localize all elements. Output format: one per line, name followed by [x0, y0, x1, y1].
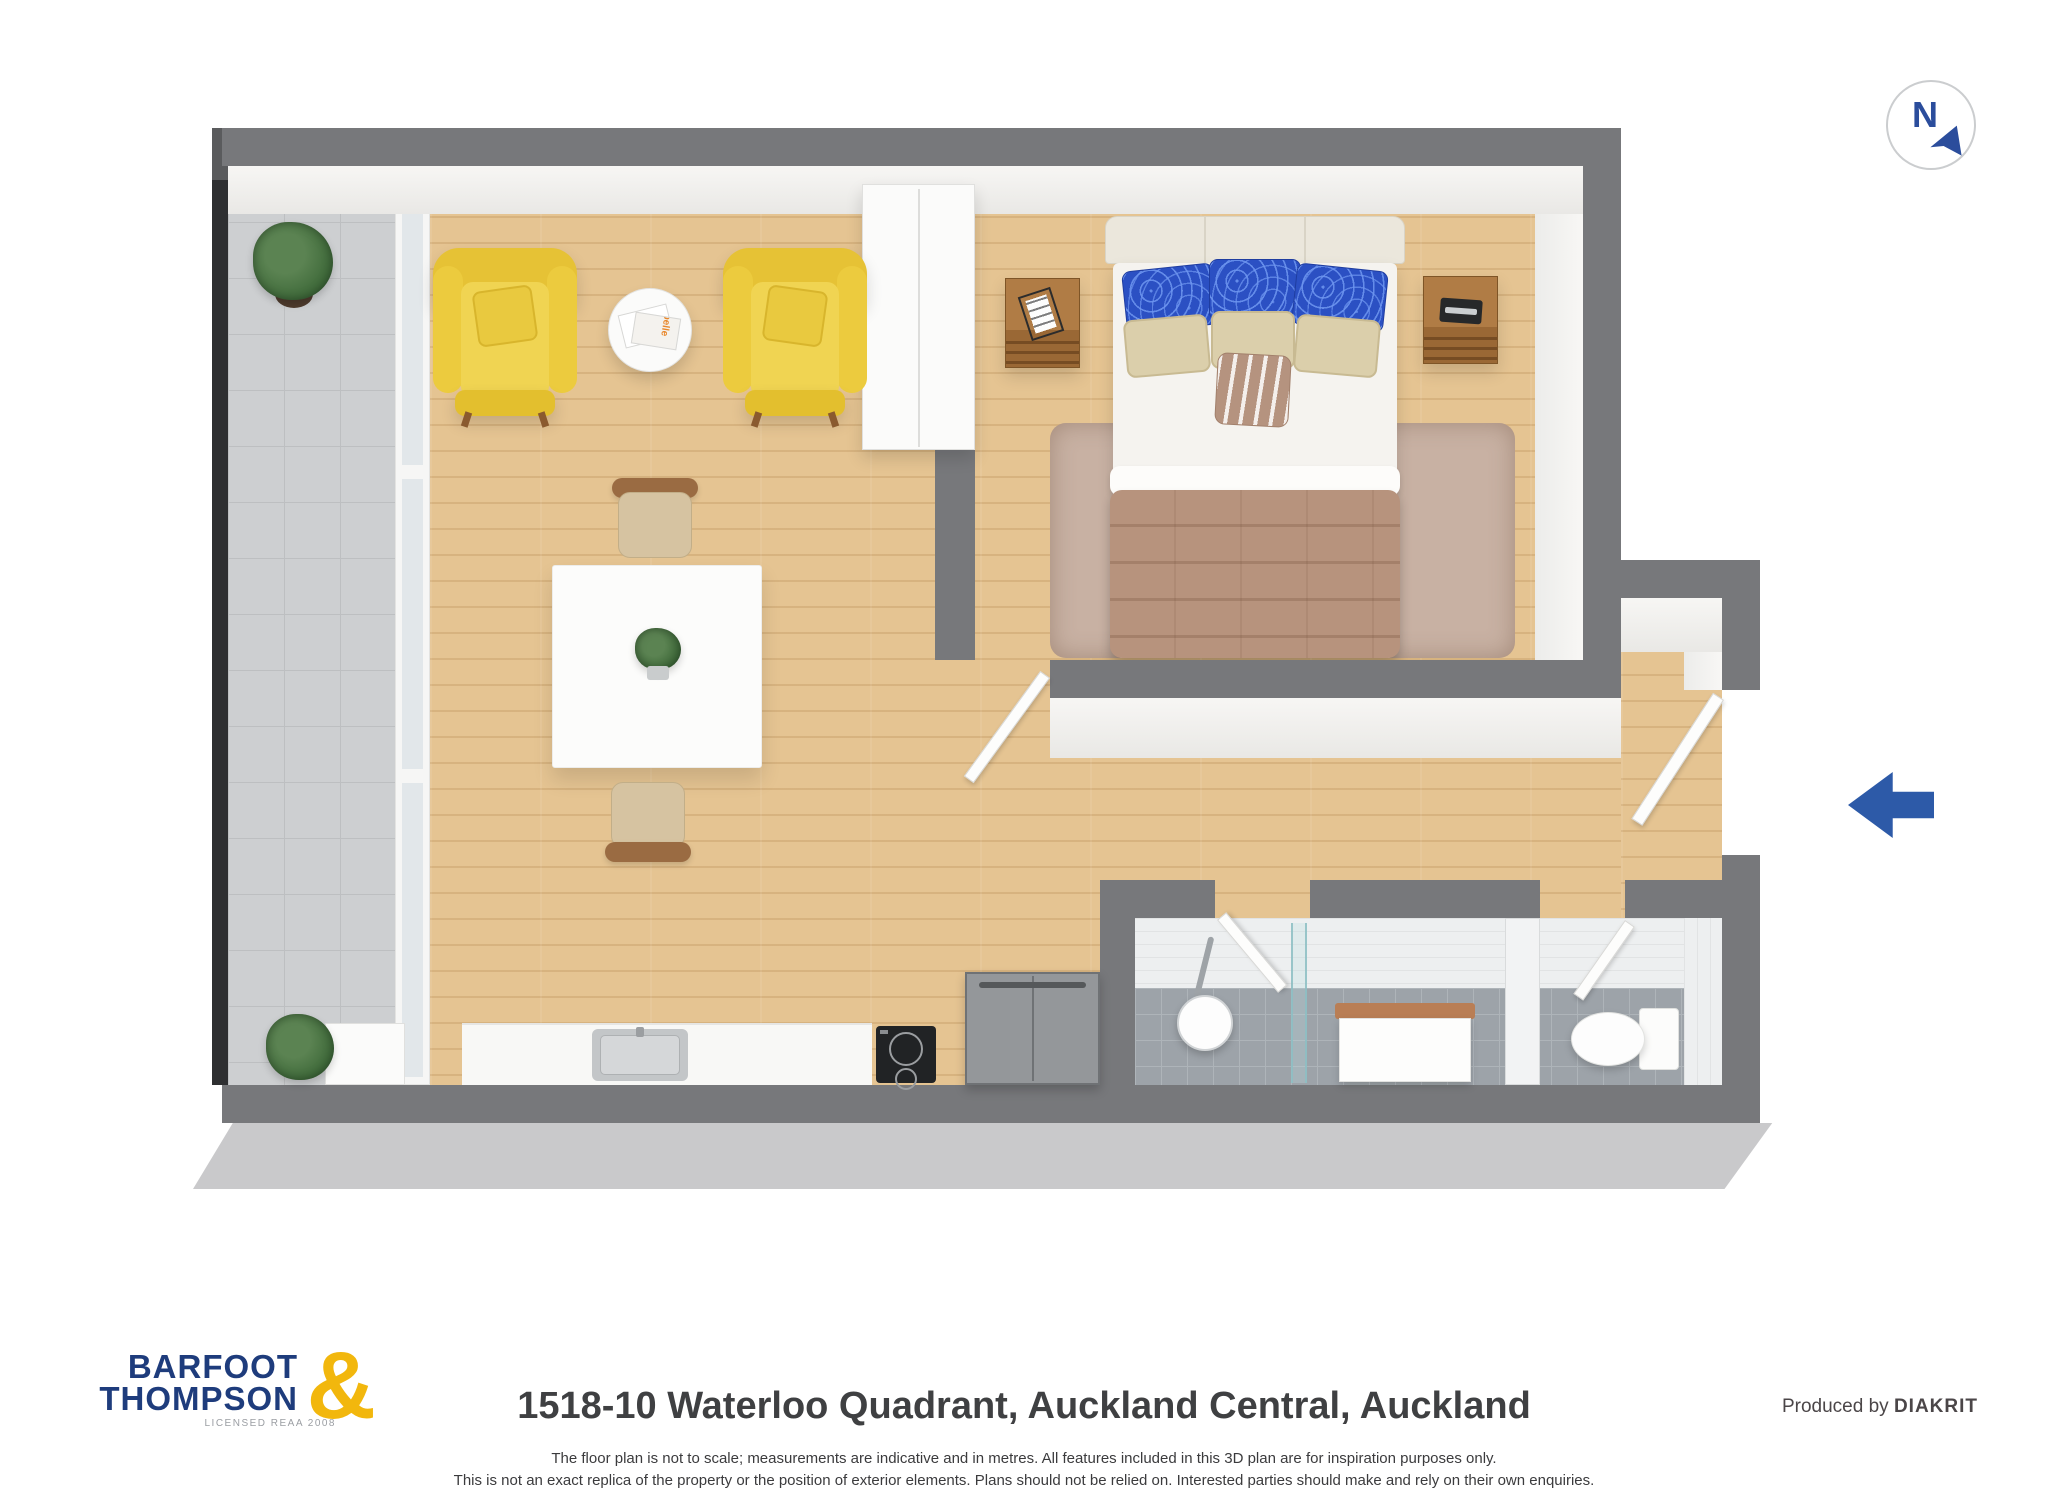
- entry-step-wall-face: [1621, 598, 1722, 652]
- toilet-cistern: [1639, 1008, 1679, 1070]
- armchair-pillow: [761, 284, 828, 348]
- armchair-arm: [837, 266, 867, 393]
- right-wall-below-door: [1722, 855, 1760, 1123]
- right-wall-above-door: [1722, 598, 1760, 690]
- pillow-beige: [1123, 313, 1212, 378]
- balcony-floor: [228, 166, 395, 1085]
- crate-slats: [1424, 330, 1497, 363]
- kitchen-sink: [592, 1029, 688, 1081]
- burner-small: [895, 1068, 917, 1090]
- vanity-basin: [1339, 1018, 1471, 1082]
- produced-by-label: Produced by: [1782, 1396, 1889, 1417]
- wardrobe-door-seam: [918, 189, 920, 447]
- fridge-handles: [979, 982, 1086, 988]
- shower-glass-panel: [1291, 923, 1307, 1083]
- chair-seat: [611, 782, 685, 848]
- nightstand-left: [1005, 278, 1080, 368]
- clock-face: [1445, 307, 1477, 315]
- bathroom-right-wall-face: [1684, 918, 1722, 1085]
- balcony-railing: [212, 158, 228, 1085]
- cooktop: [876, 1026, 936, 1083]
- glass-pane: [402, 783, 423, 1077]
- glass-pane: [402, 175, 423, 465]
- cooktop-controls: [880, 1030, 888, 1034]
- crate-slats: [1006, 334, 1079, 367]
- floor-plan-3d: belle: [205, 118, 1805, 1198]
- armchair-arm: [723, 266, 753, 393]
- armchair-left: [433, 248, 577, 418]
- bedroom-right-wall-face: [1535, 214, 1583, 660]
- armchair-arm: [547, 266, 577, 393]
- vanity-mirror-edge: [1335, 1003, 1475, 1019]
- pillow-striped-accent: [1214, 352, 1292, 428]
- balcony-plant-bottom: [266, 1014, 334, 1080]
- side-table: belle: [608, 288, 692, 372]
- dining-chair-top: [612, 478, 698, 564]
- pillow-beige: [1293, 313, 1382, 378]
- entry-arrow-icon: [1848, 772, 1934, 838]
- bedroom-right-wall: [1583, 128, 1621, 660]
- sink-faucet: [636, 1027, 644, 1037]
- property-address-title: 1518-10 Waterloo Quadrant, Auckland Cent…: [0, 1385, 2048, 1428]
- sink-basin: [600, 1035, 680, 1075]
- entry-opening: [1722, 690, 1760, 855]
- chair-seat: [618, 492, 692, 558]
- entry-right-wall-face: [1684, 652, 1722, 690]
- balcony-planter-wall: [325, 1023, 405, 1085]
- table-centerpiece-plant: [635, 628, 681, 670]
- armchair-right: [723, 248, 867, 418]
- top-wall: [222, 128, 1621, 166]
- bedroom-bottom-wall-face: [1050, 698, 1621, 758]
- fridge-door-seam: [1032, 976, 1034, 1081]
- chair-backrest: [605, 842, 691, 862]
- bathroom-top-wall-seg: [1100, 880, 1215, 918]
- bed-comforter: [1110, 490, 1400, 658]
- wardrobe-wall-stub: [935, 450, 975, 660]
- floorplan-page: belle N BARFOOT THOMPSON & LICENSED R: [0, 0, 2048, 1494]
- balcony-plant-top: [253, 222, 333, 300]
- magazine-title: belle: [658, 313, 672, 337]
- dining-table: [552, 565, 762, 768]
- centerpiece-vase: [647, 666, 669, 680]
- compass: N: [1886, 80, 1976, 170]
- armchair-pillow: [471, 284, 538, 348]
- compass-arrow-icon: [1928, 122, 1964, 158]
- burner-large: [889, 1032, 923, 1066]
- sliding-glass-door-frame: [395, 166, 430, 1085]
- disclaimer-line-2: This is not an exact replica of the prop…: [0, 1472, 2048, 1489]
- shower-head: [1177, 995, 1233, 1051]
- logo-word-barfoot: BARFOOT: [128, 1350, 298, 1383]
- bathroom-top-wall-seg: [1310, 880, 1540, 918]
- wc-divider-wall: [1505, 918, 1540, 1085]
- fridge: [965, 972, 1100, 1085]
- disclaimer-line-1: The floor plan is not to scale; measurem…: [0, 1450, 2048, 1467]
- producer-name: DIAKRIT: [1894, 1396, 1978, 1417]
- bathroom-top-wall-seg: [1625, 880, 1722, 918]
- entry-step-wall: [1621, 560, 1760, 598]
- alarm-clock: [1439, 298, 1483, 325]
- bedroom-bottom-wall: [1050, 660, 1621, 698]
- nightstand-right: [1423, 276, 1498, 364]
- bottom-wall: [222, 1085, 1760, 1123]
- armchair-arm: [433, 266, 463, 393]
- toilet-bowl: [1571, 1012, 1645, 1066]
- wardrobe: [862, 184, 975, 450]
- producer-credit: Produced by DIAKRIT: [1782, 1396, 1978, 1418]
- dining-chair-bottom: [605, 776, 691, 862]
- glass-pane: [402, 479, 423, 769]
- bed-headboard: [1105, 216, 1405, 264]
- wall-outer-face: [193, 1123, 1785, 1189]
